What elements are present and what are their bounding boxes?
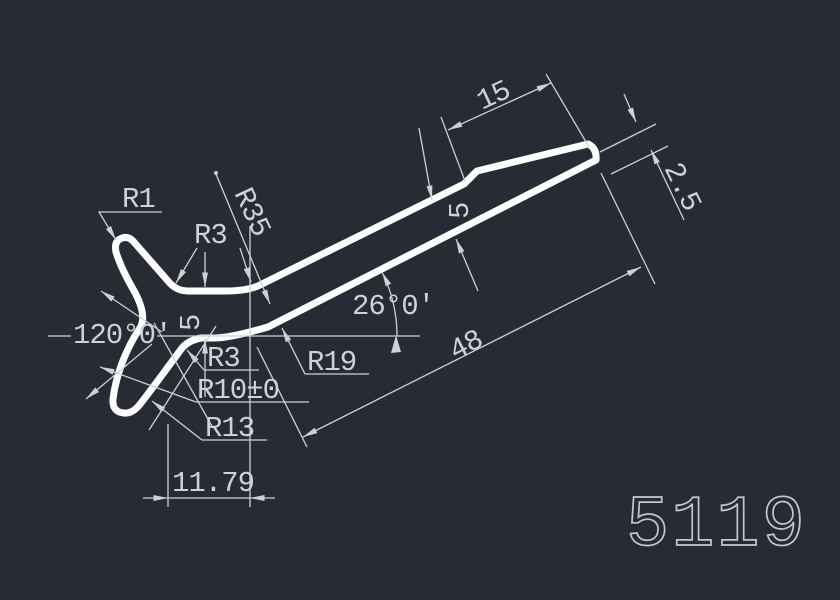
dim-15-ext-left [441, 117, 465, 181]
dim-label-1179: 11.79 [172, 467, 254, 500]
dim-label-r3-top: R3 [194, 219, 227, 252]
cad-drawing: R1 R3 R35 120°0' 5 R3 R10±0 R13 R19 26°0… [0, 0, 840, 600]
dim-25-ext-a [600, 124, 656, 152]
dim-r35-leader-dot [214, 171, 218, 175]
dim-25-arrow-upper [624, 94, 636, 122]
dim-label-r13: R13 [205, 412, 254, 445]
dim-label-stem5: 5 [175, 315, 208, 331]
dim-r13-leader [152, 401, 202, 440]
dim-r3-top-leader-left [176, 248, 197, 283]
dim-15-ext-right [546, 74, 589, 147]
dim-label-r10: R10±0 [197, 374, 279, 407]
dim-120-ray-lower [86, 344, 152, 399]
dim-step5-lower [456, 239, 478, 291]
drawing-number: 5119 [626, 485, 807, 567]
dim-label-r1: R1 [122, 183, 155, 216]
dim-label-15: 15 [472, 74, 516, 118]
dim-label-26: 26°0' [352, 290, 434, 323]
dim-label-step5: 5 [444, 203, 477, 219]
dim-26-arrow [391, 335, 401, 353]
dim-label-25: 2.5 [656, 157, 707, 216]
dim-label-120: 120°0' [73, 319, 171, 352]
dim-r19-leader [282, 328, 305, 374]
dim-48-ext-right [601, 173, 655, 284]
dim-label-r3-bottom: R3 [207, 342, 240, 375]
dim-label-r35: R35 [226, 183, 277, 242]
cad-viewport: R1 R3 R35 120°0' 5 R3 R10±0 R13 R19 26°0… [0, 0, 840, 600]
dim-label-48: 48 [444, 324, 488, 368]
dim-step5-upper [419, 128, 432, 200]
dim-label-r19: R19 [307, 346, 356, 379]
